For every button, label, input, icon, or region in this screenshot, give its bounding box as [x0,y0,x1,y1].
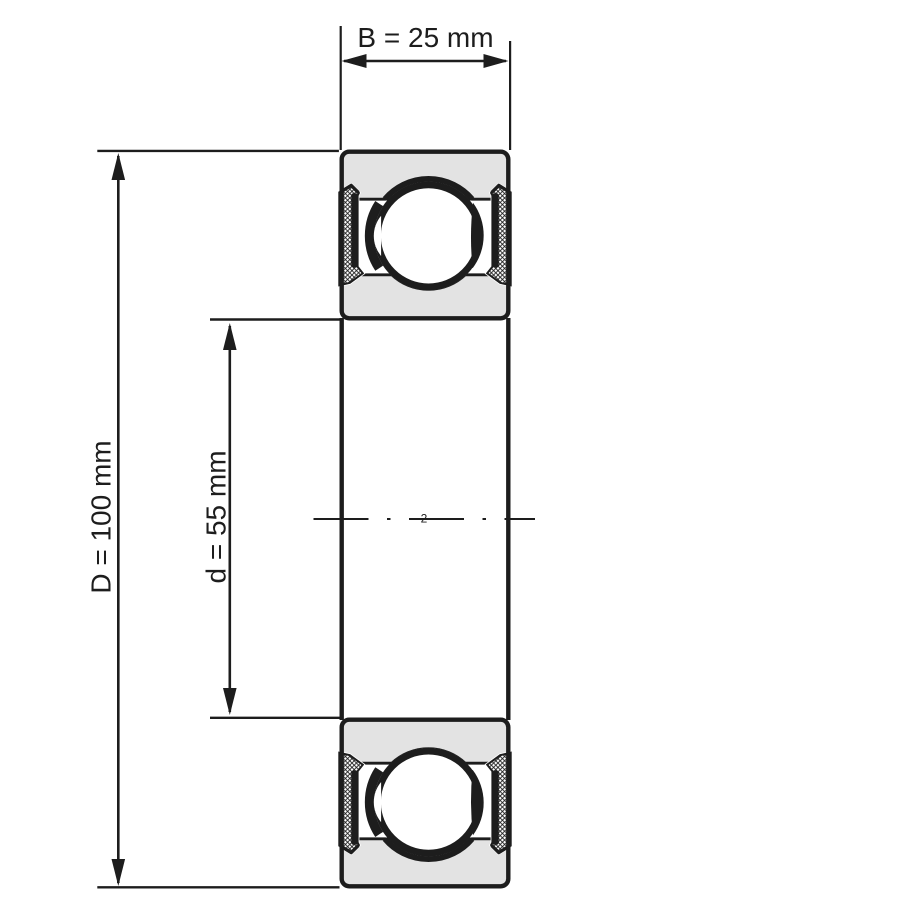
svg-text:D = 100 mm: D = 100 mm [86,440,117,593]
svg-text:2: 2 [421,512,428,526]
svg-text:B = 25 mm: B = 25 mm [357,22,493,53]
svg-text:d = 55 mm: d = 55 mm [201,450,232,583]
